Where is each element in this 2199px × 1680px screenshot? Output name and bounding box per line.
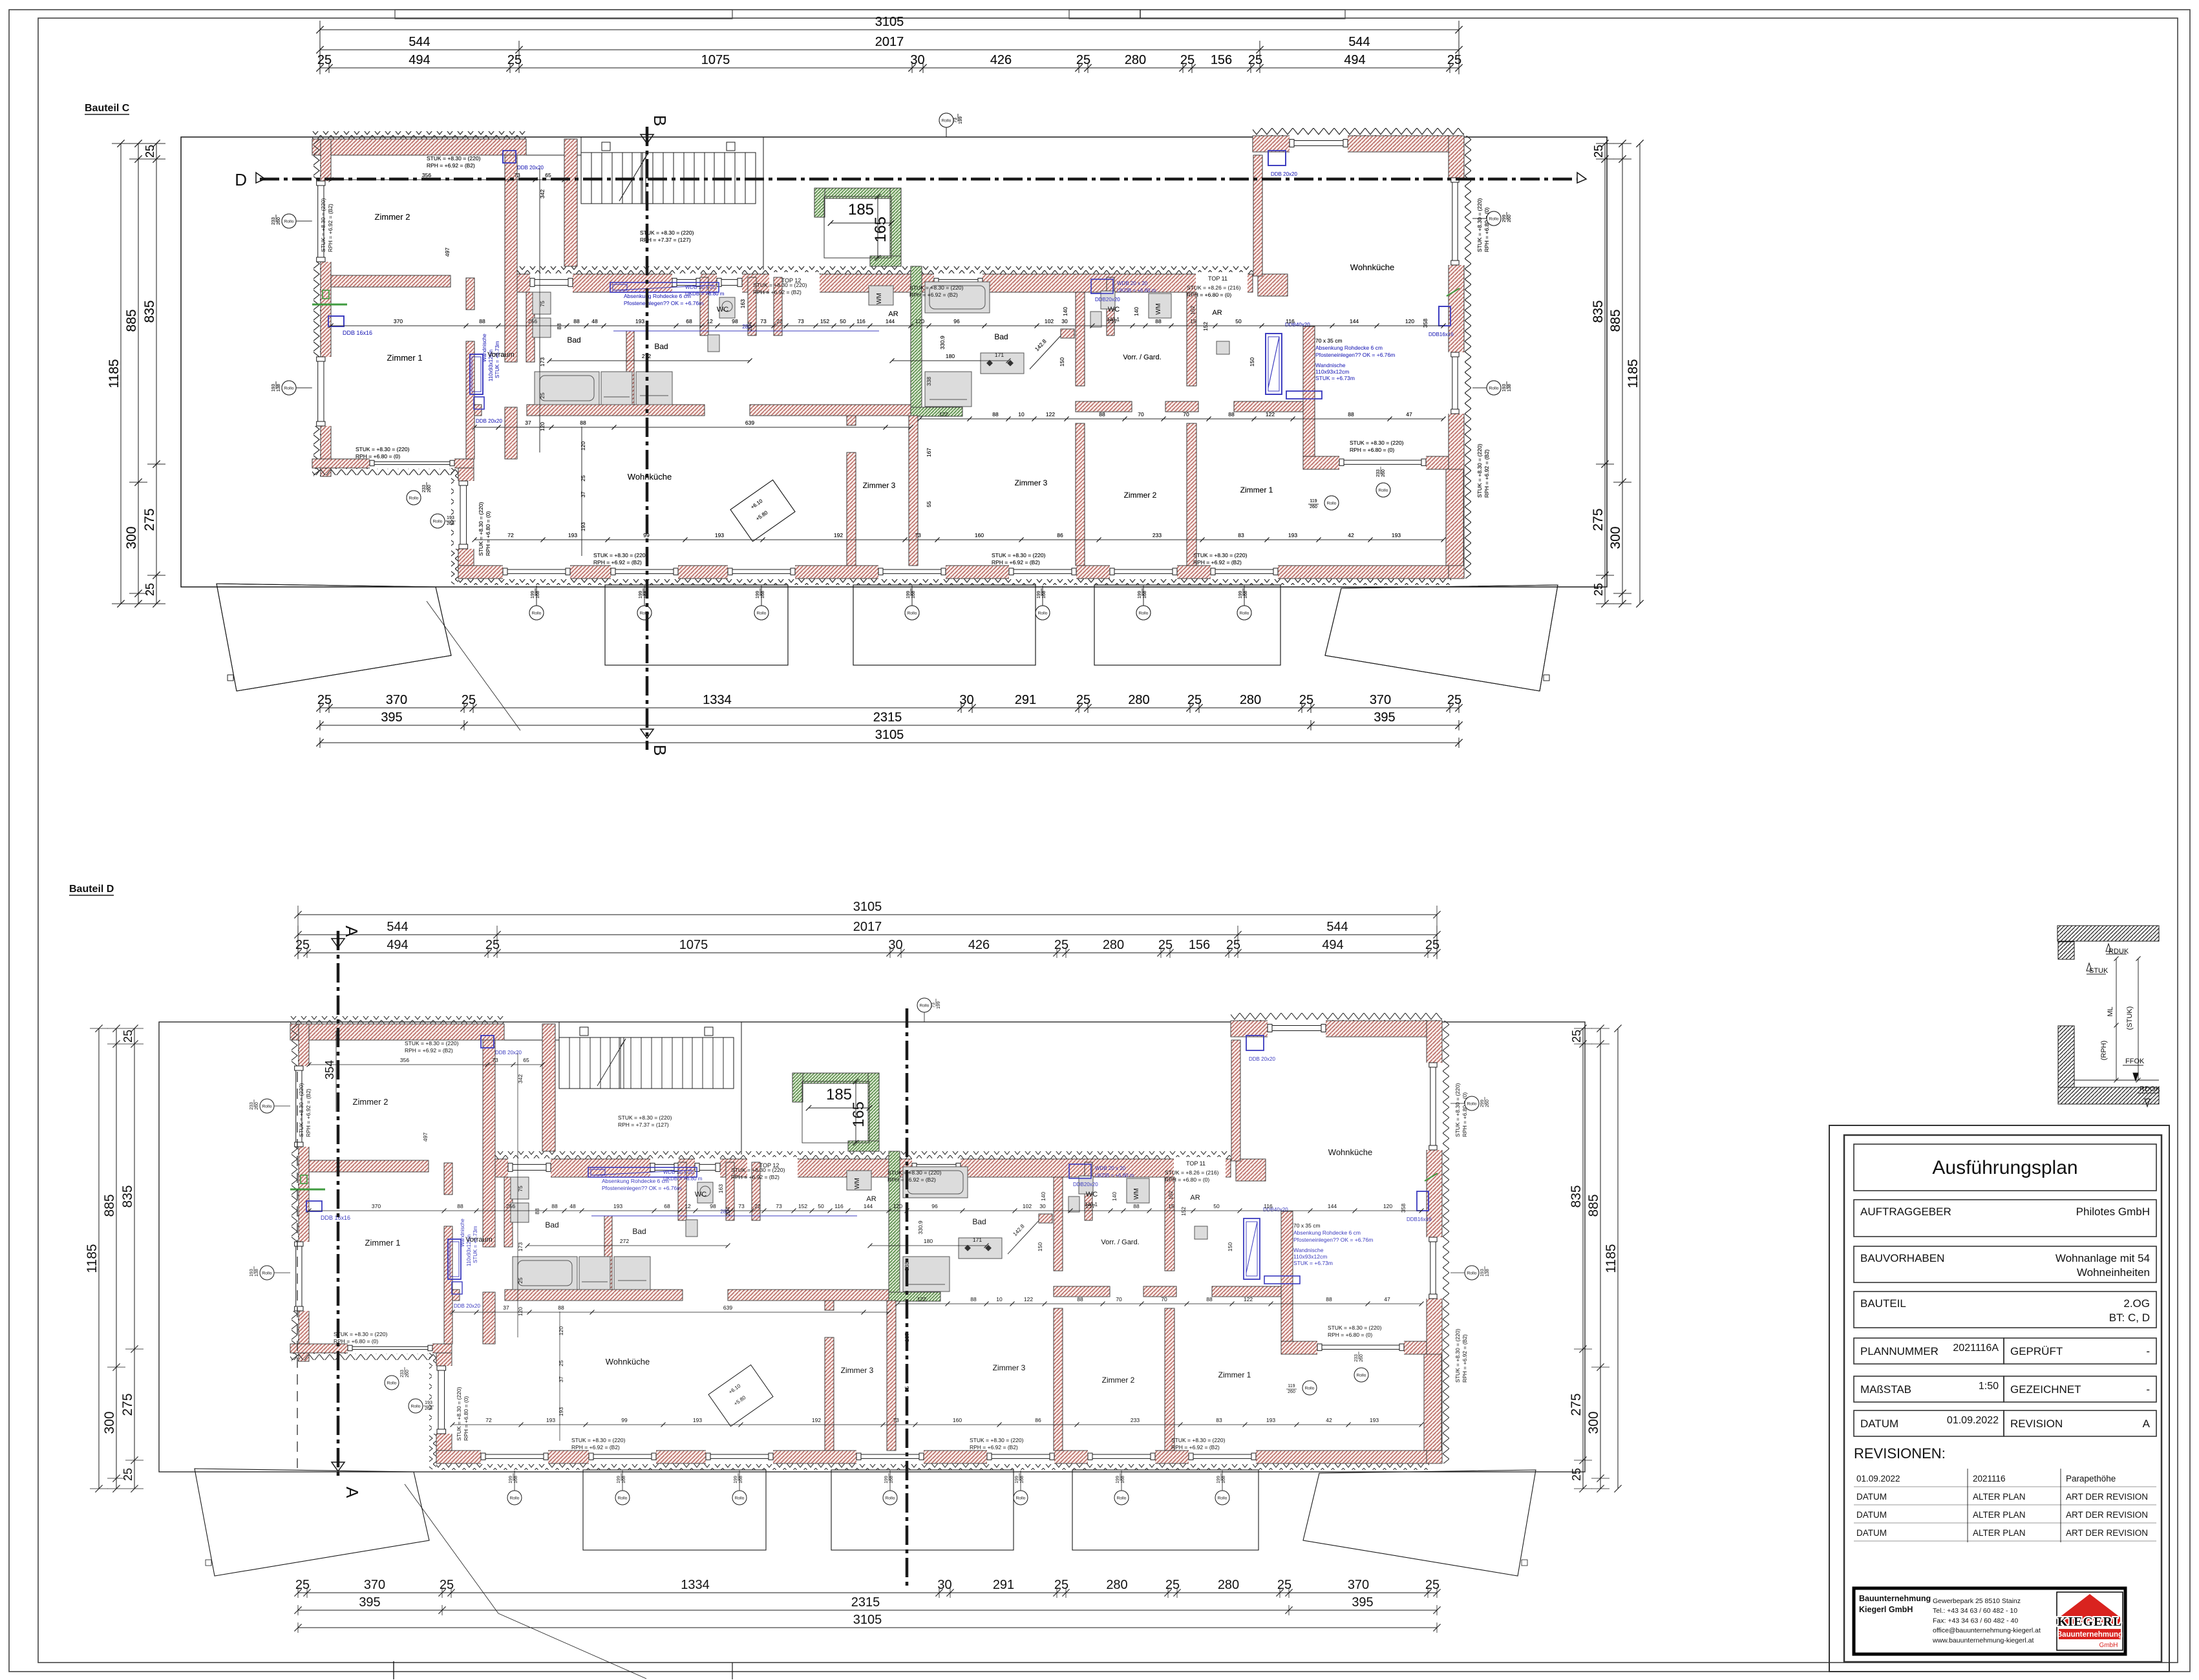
svg-text:ALTER PLAN: ALTER PLAN [1973, 1528, 2026, 1538]
svg-text:D: D [235, 170, 247, 189]
svg-text:ART DER REVISION: ART DER REVISION [2066, 1528, 2148, 1538]
svg-text:-: - [2146, 1345, 2150, 1357]
svg-text:KIEGERL: KIEGERL [2057, 1615, 2122, 1629]
svg-text:AUFTRAGGEBER: AUFTRAGGEBER [1860, 1206, 1951, 1218]
svg-text:01.09.2022: 01.09.2022 [1947, 1415, 1999, 1426]
svg-text:BAUVORHABEN: BAUVORHABEN [1860, 1252, 1944, 1264]
svg-text:DATUM: DATUM [1856, 1510, 1887, 1520]
svg-text:office@bauunternehmung-kiegerl: office@bauunternehmung-kiegerl.at [1933, 1627, 2041, 1635]
svg-text:(STUK): (STUK) [2126, 1006, 2134, 1030]
svg-text:Tel.: +43 34 63 / 60 482 - 10: Tel.: +43 34 63 / 60 482 - 10 [1933, 1607, 2017, 1615]
svg-text:GEPRÜFT: GEPRÜFT [2010, 1345, 2063, 1357]
svg-text:354: 354 [323, 1060, 336, 1079]
svg-text:DATUM: DATUM [1860, 1418, 1898, 1430]
svg-text:ML: ML [2107, 1006, 2114, 1016]
svg-text:RDOK: RDOK [2140, 1085, 2160, 1093]
svg-text:ART DER REVISION: ART DER REVISION [2066, 1492, 2148, 1502]
svg-text:DATUM: DATUM [1856, 1528, 1887, 1538]
svg-text:Bauteil C: Bauteil C [85, 103, 130, 114]
svg-text:B: B [650, 745, 670, 756]
svg-text:(RPH): (RPH) [2100, 1041, 2108, 1061]
svg-text:ALTER PLAN: ALTER PLAN [1973, 1510, 2026, 1520]
svg-text:MAßSTAB: MAßSTAB [1860, 1383, 1911, 1396]
svg-text:Fax: +43 34 63 / 60 482 - 40: Fax: +43 34 63 / 60 482 - 40 [1933, 1617, 2018, 1624]
svg-text:PLANNUMMER: PLANNUMMER [1860, 1345, 1939, 1357]
svg-text:www.bauunternehmung-kiegerl.at: www.bauunternehmung-kiegerl.at [1932, 1637, 2034, 1644]
svg-text:DATUM: DATUM [1856, 1492, 1887, 1502]
svg-text:REVISION: REVISION [2010, 1418, 2063, 1430]
svg-text:BAUTEIL: BAUTEIL [1860, 1297, 1906, 1310]
svg-text:Wohneinheiten: Wohneinheiten [2077, 1266, 2150, 1279]
svg-text:B: B [650, 115, 670, 126]
svg-text:Bauunternehmung: Bauunternehmung [2057, 1631, 2123, 1639]
svg-text:GmbH: GmbH [2099, 1642, 2118, 1649]
svg-text:2.OG: 2.OG [2123, 1297, 2150, 1310]
svg-text:Ausführungsplan: Ausführungsplan [1932, 1157, 2077, 1178]
svg-text:Parapethöhe: Parapethöhe [2066, 1474, 2116, 1483]
svg-text:A: A [2143, 1418, 2151, 1430]
svg-text:Kiegerl GmbH: Kiegerl GmbH [1859, 1605, 1913, 1614]
svg-text:ART DER REVISION: ART DER REVISION [2066, 1510, 2148, 1520]
svg-text:Bauteil D: Bauteil D [69, 884, 114, 895]
svg-text:2021116: 2021116 [1973, 1474, 2006, 1483]
svg-text:Wohnanlage mit 54: Wohnanlage mit 54 [2056, 1252, 2150, 1264]
svg-text:A: A [342, 926, 361, 937]
svg-text:REVISIONEN:: REVISIONEN: [1854, 1445, 1946, 1462]
svg-text:2021116A: 2021116A [1953, 1343, 1999, 1354]
svg-text:FFOK: FFOK [2125, 1058, 2145, 1065]
svg-text:GEZEICHNET: GEZEICHNET [2010, 1383, 2081, 1396]
svg-text:01.09.2022: 01.09.2022 [1856, 1474, 1900, 1483]
svg-text:ALTER PLAN: ALTER PLAN [1973, 1492, 2026, 1502]
svg-text:Philotes GmbH: Philotes GmbH [2076, 1206, 2150, 1218]
svg-text:A: A [343, 1487, 362, 1498]
svg-text:BT: C, D: BT: C, D [2109, 1312, 2150, 1324]
svg-text:Bauunternehmung: Bauunternehmung [1859, 1594, 1931, 1603]
svg-text:Gewerbepark 25 8510 Stainz: Gewerbepark 25 8510 Stainz [1933, 1597, 2021, 1605]
svg-text:-: - [2146, 1383, 2150, 1396]
svg-text:1:50: 1:50 [1979, 1381, 1999, 1392]
